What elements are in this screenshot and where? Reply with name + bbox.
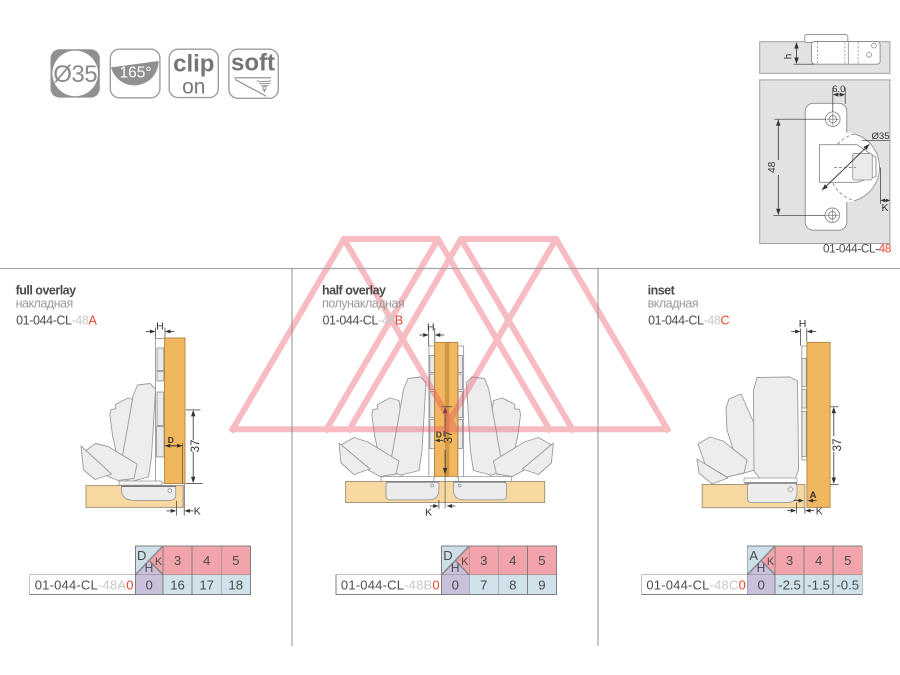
svg-text:H: H xyxy=(427,321,435,333)
svg-text:4: 4 xyxy=(509,553,516,568)
svg-text:K: K xyxy=(767,556,775,568)
svg-text:-1.5: -1.5 xyxy=(807,577,830,592)
svg-text:inset: inset xyxy=(648,284,676,298)
svg-text:вкладная: вкладная xyxy=(648,297,698,311)
svg-text:0: 0 xyxy=(145,577,152,592)
svg-text:3: 3 xyxy=(174,553,181,568)
svg-text:5: 5 xyxy=(232,553,239,568)
svg-text:37: 37 xyxy=(832,439,844,452)
svg-text:full overlay: full overlay xyxy=(16,284,77,298)
svg-text:clip: clip xyxy=(173,51,214,78)
svg-text:9: 9 xyxy=(538,577,545,592)
svg-text:01-044-CL-48B0: 01-044-CL-48B0 xyxy=(341,577,440,592)
svg-text:17: 17 xyxy=(199,577,214,592)
svg-text:Ø35: Ø35 xyxy=(872,131,890,142)
svg-text:-2.5: -2.5 xyxy=(778,577,801,592)
svg-text:H: H xyxy=(156,321,164,333)
svg-text:3: 3 xyxy=(786,553,793,568)
svg-text:4: 4 xyxy=(203,553,210,568)
svg-text:K: K xyxy=(194,506,201,518)
svg-text:165°: 165° xyxy=(119,65,151,82)
svg-text:D: D xyxy=(168,435,174,445)
svg-text:7: 7 xyxy=(480,577,487,592)
svg-text:4: 4 xyxy=(815,553,822,568)
svg-text:полунакладная: полунакладная xyxy=(322,297,404,311)
svg-text:soft: soft xyxy=(231,50,275,77)
svg-text:18: 18 xyxy=(228,577,243,592)
svg-text:H: H xyxy=(757,561,766,575)
svg-text:01-044-CL-48: 01-044-CL-48 xyxy=(823,242,892,256)
svg-text:3: 3 xyxy=(480,553,487,568)
svg-text:01-044-CL-48C: 01-044-CL-48C xyxy=(648,314,729,328)
svg-text:8: 8 xyxy=(509,577,516,592)
svg-text:Ø35: Ø35 xyxy=(53,61,97,88)
svg-text:H: H xyxy=(145,561,154,575)
svg-text:01-044-CL-48A0: 01-044-CL-48A0 xyxy=(35,577,134,592)
svg-text:16: 16 xyxy=(170,577,185,592)
svg-text:H: H xyxy=(451,561,460,575)
svg-text:K: K xyxy=(816,506,823,518)
svg-text:K: K xyxy=(461,556,469,568)
svg-text:5: 5 xyxy=(538,553,545,568)
svg-text:-0.5: -0.5 xyxy=(836,577,859,592)
svg-text:0: 0 xyxy=(757,577,764,592)
svg-text:01-044-CL-48A: 01-044-CL-48A xyxy=(16,314,97,328)
svg-text:K: K xyxy=(155,556,163,568)
svg-text:K: K xyxy=(425,506,432,518)
svg-text:48: 48 xyxy=(767,161,778,173)
svg-text:0: 0 xyxy=(452,577,459,592)
svg-text:K: K xyxy=(881,202,888,214)
svg-text:half overlay: half overlay xyxy=(322,284,386,298)
svg-text:01-044-CL-48B: 01-044-CL-48B xyxy=(323,314,403,328)
svg-text:h: h xyxy=(784,54,795,60)
svg-text:5: 5 xyxy=(844,553,851,568)
svg-text:37: 37 xyxy=(190,440,202,453)
svg-text:H: H xyxy=(799,318,807,330)
svg-text:накладная: накладная xyxy=(16,297,73,311)
svg-text:6.0: 6.0 xyxy=(832,84,845,95)
svg-text:01-044-CL-48C0: 01-044-CL-48C0 xyxy=(646,577,746,592)
svg-text:on: on xyxy=(182,76,205,99)
